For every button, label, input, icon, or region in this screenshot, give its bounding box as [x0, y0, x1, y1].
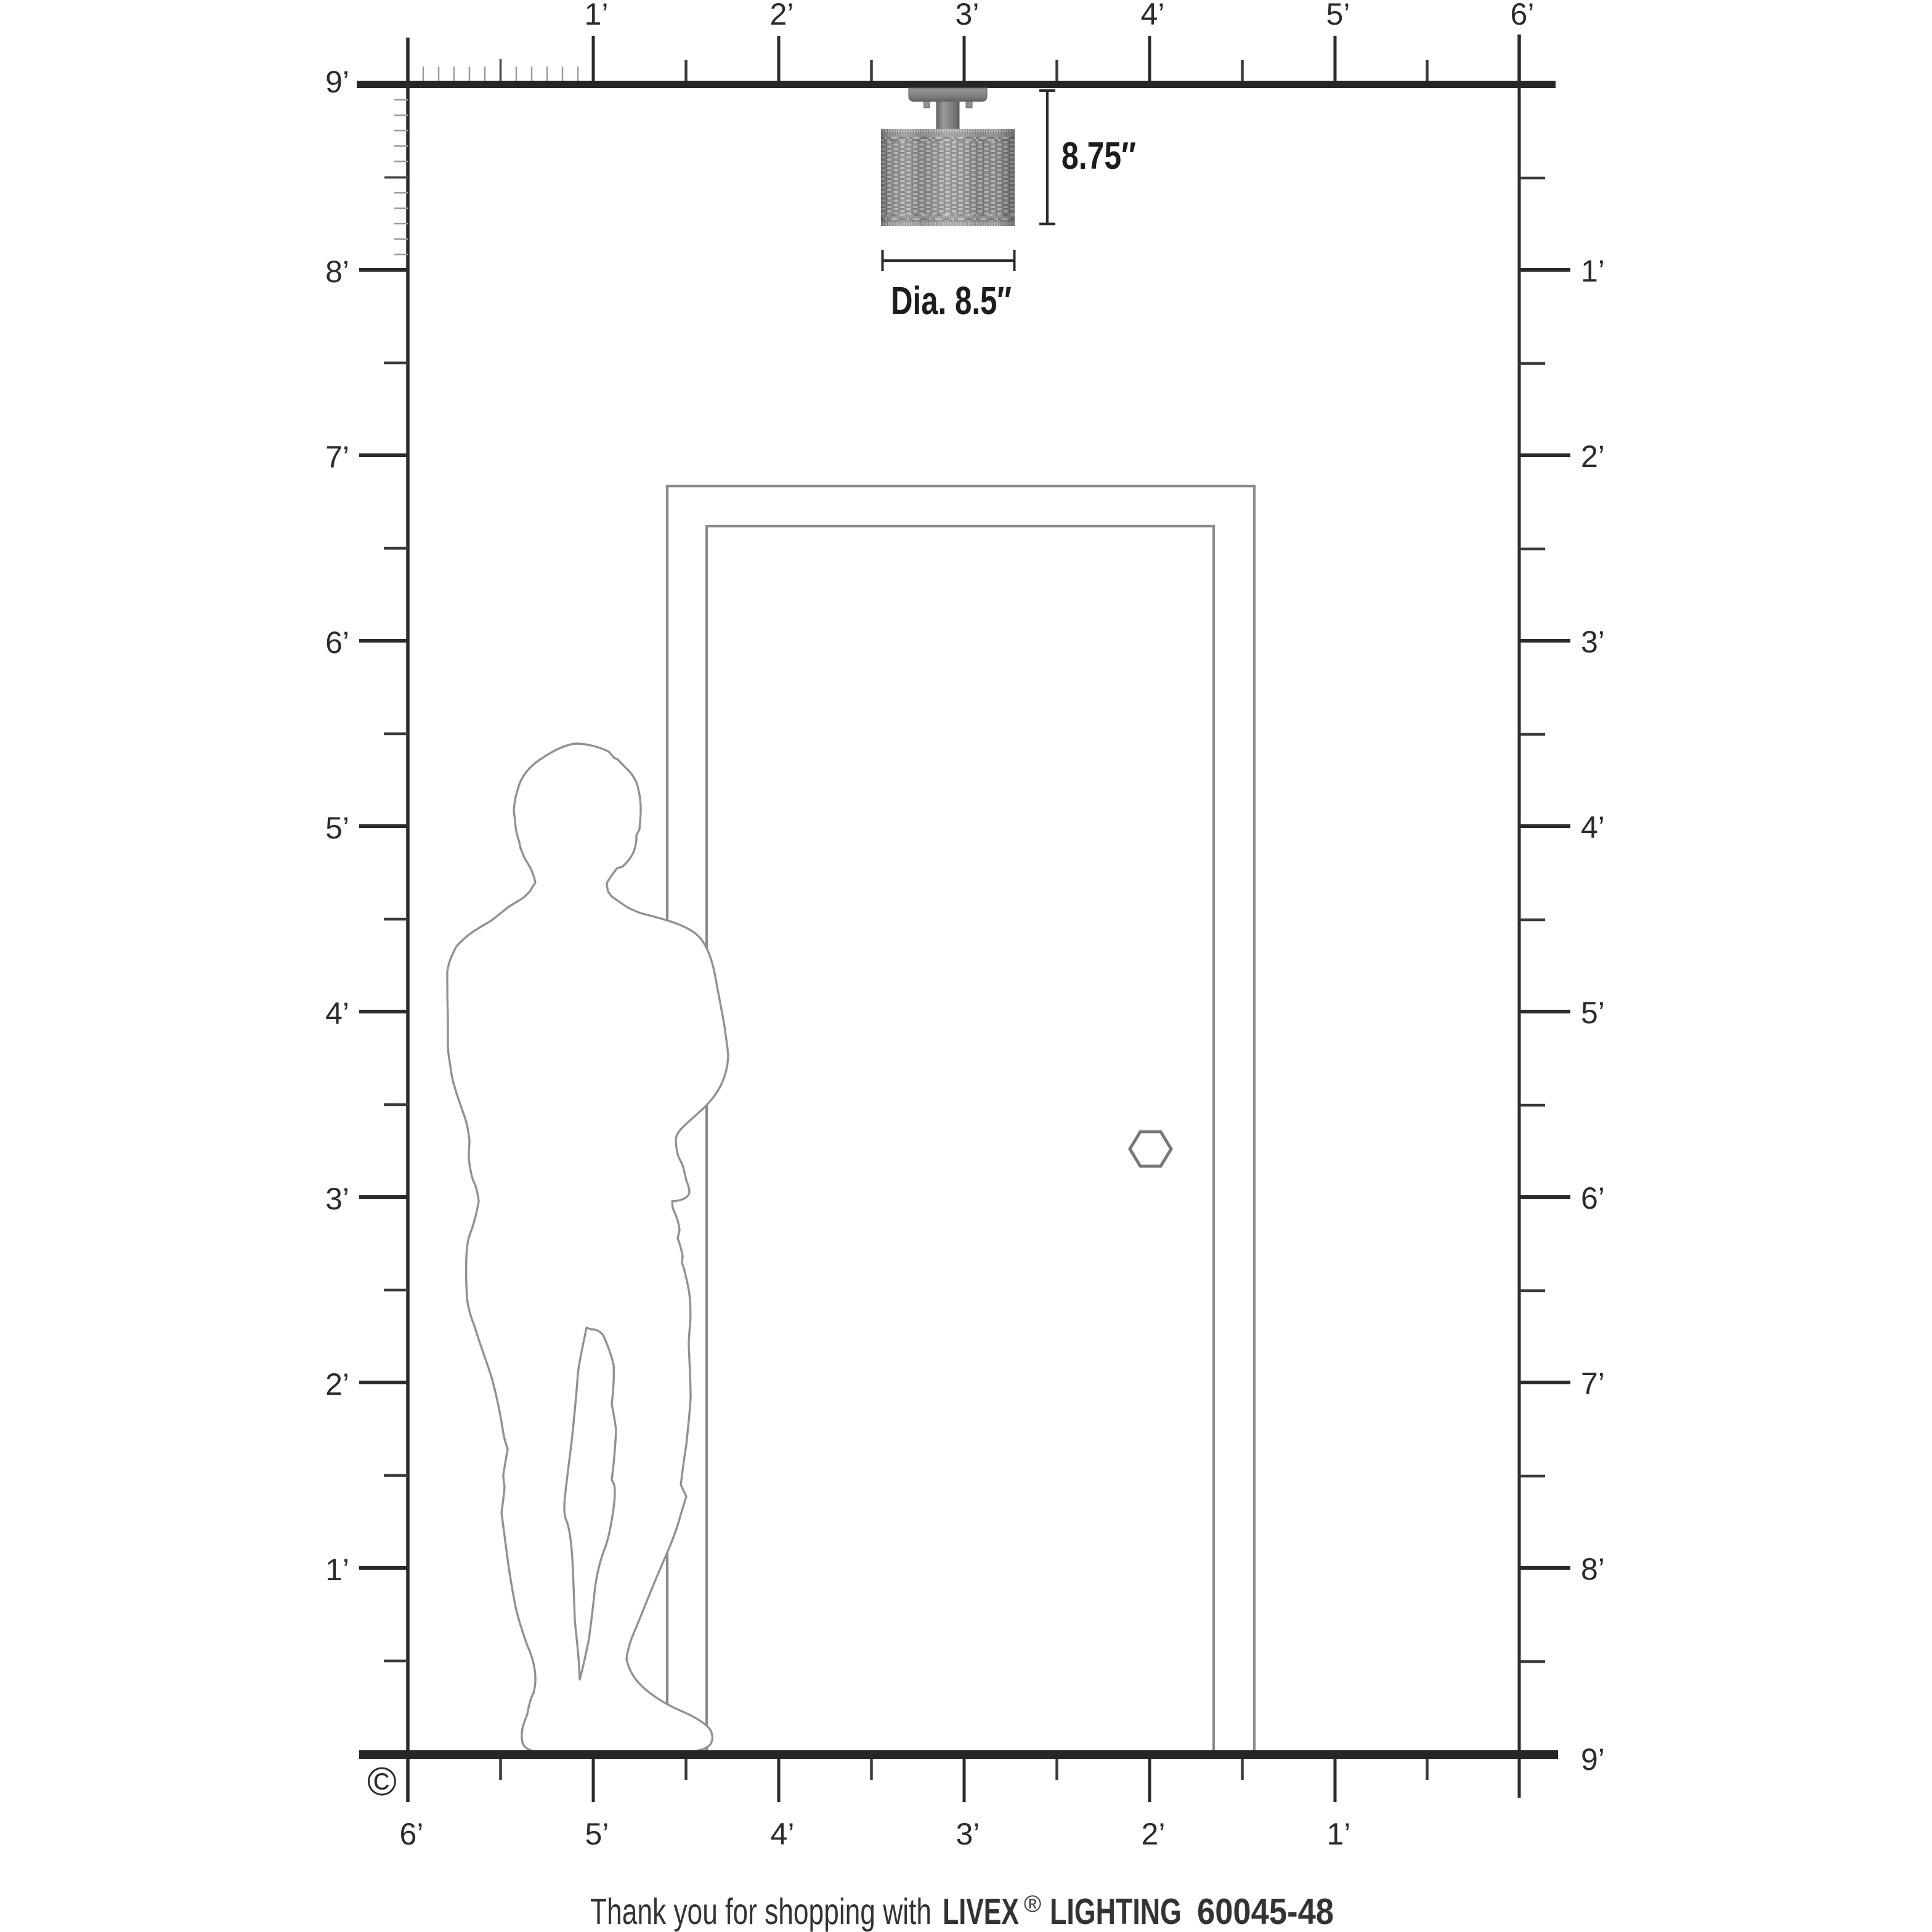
- svg-text:6’: 6’: [400, 1817, 424, 1851]
- svg-text:3’: 3’: [956, 0, 980, 31]
- svg-text:60045-48: 60045-48: [1197, 1891, 1334, 1932]
- svg-text:Dia. 8.5″: Dia. 8.5″: [891, 278, 1012, 323]
- svg-text:8’: 8’: [1581, 1552, 1605, 1586]
- svg-text:9’: 9’: [325, 65, 349, 99]
- svg-text:4’: 4’: [1141, 0, 1165, 31]
- svg-text:1’: 1’: [1581, 254, 1605, 288]
- svg-text:8’: 8’: [325, 254, 349, 289]
- svg-text:1’: 1’: [1327, 1817, 1351, 1851]
- svg-text:1’: 1’: [325, 1552, 349, 1587]
- svg-text:1’: 1’: [585, 0, 609, 31]
- svg-text:4’: 4’: [325, 996, 349, 1031]
- svg-text:Thank you for shopping with: Thank you for shopping with: [590, 1891, 931, 1932]
- svg-text:5’: 5’: [1581, 996, 1605, 1030]
- svg-text:6’: 6’: [1511, 0, 1535, 31]
- svg-text:2’: 2’: [770, 0, 794, 31]
- svg-text:2’: 2’: [325, 1367, 349, 1402]
- svg-text:3’: 3’: [325, 1182, 349, 1216]
- svg-text:5’: 5’: [585, 1817, 609, 1851]
- svg-text:6’: 6’: [1581, 1181, 1605, 1216]
- svg-text:6’: 6’: [325, 625, 349, 660]
- svg-text:9’: 9’: [1581, 1742, 1605, 1777]
- svg-text:5’: 5’: [1326, 0, 1350, 31]
- svg-text:©: ©: [367, 1759, 397, 1804]
- svg-text:®: ®: [1024, 1891, 1041, 1917]
- svg-text:3’: 3’: [1581, 625, 1605, 659]
- svg-text:2’: 2’: [1581, 439, 1605, 474]
- svg-text:LIVEX: LIVEX: [943, 1891, 1019, 1932]
- svg-text:2’: 2’: [1142, 1817, 1166, 1851]
- svg-text:4’: 4’: [771, 1817, 795, 1851]
- svg-text:LIGHTING: LIGHTING: [1050, 1891, 1182, 1932]
- svg-text:7’: 7’: [325, 440, 349, 474]
- svg-text:5’: 5’: [325, 811, 349, 845]
- svg-text:3’: 3’: [956, 1817, 980, 1851]
- svg-text:4’: 4’: [1581, 810, 1605, 845]
- svg-text:7’: 7’: [1581, 1366, 1605, 1401]
- svg-text:8.75″: 8.75″: [1061, 135, 1136, 177]
